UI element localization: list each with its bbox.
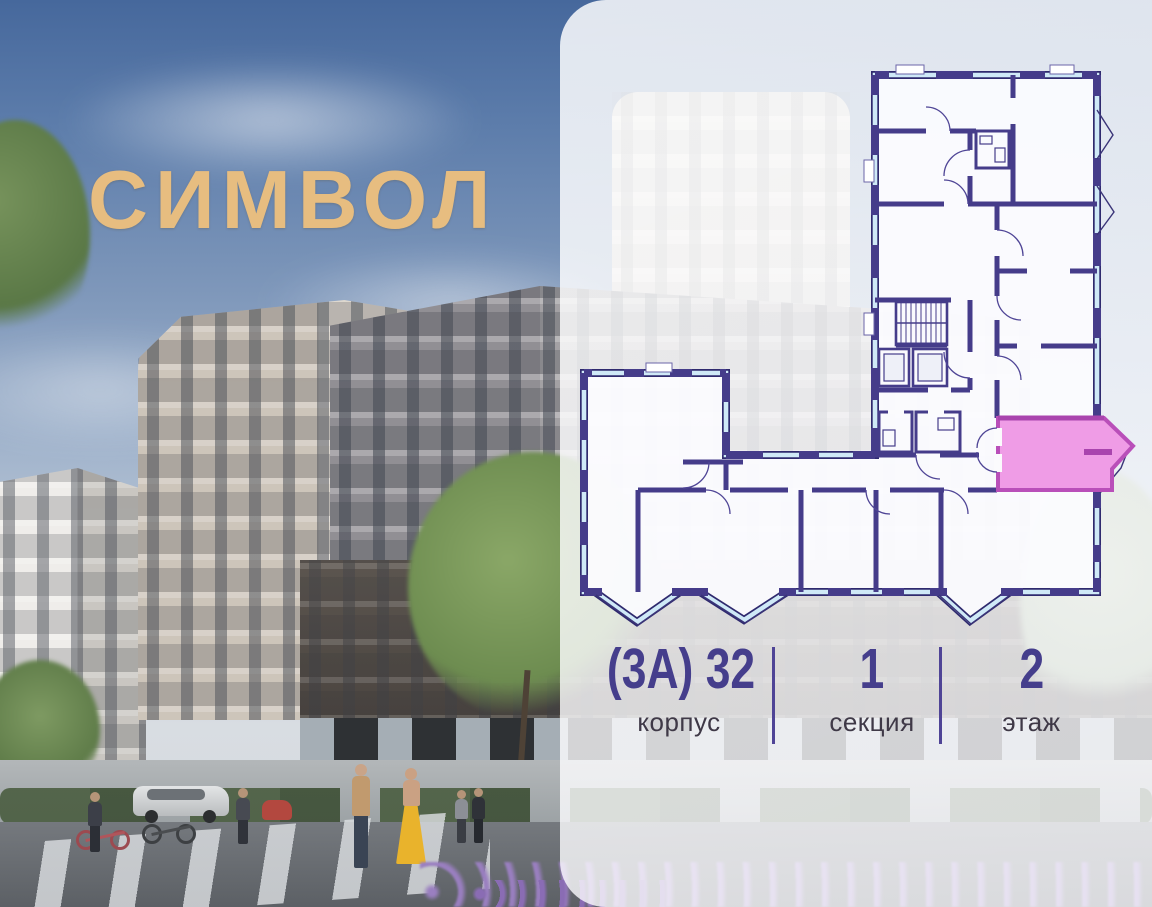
- door-opening: [994, 428, 1002, 446]
- person-head: [355, 764, 367, 776]
- car-window: [147, 789, 205, 800]
- bicycle: [142, 806, 202, 848]
- person-head: [238, 788, 248, 798]
- building-label: корпус: [586, 707, 772, 738]
- scooter: [262, 800, 292, 820]
- section-label: секция: [782, 707, 962, 738]
- floor-label: этаж: [949, 707, 1114, 738]
- floor-number: 2: [1019, 641, 1044, 698]
- building-info: (3А) 32 корпус: [586, 641, 772, 738]
- listing-page: СИМВОЛ: [0, 0, 1152, 907]
- pedestrian: [236, 788, 250, 844]
- person-head: [90, 792, 100, 802]
- section-info: 1 секция: [782, 641, 962, 738]
- person-head: [405, 768, 417, 780]
- door-opening: [994, 454, 1002, 472]
- divider: [772, 647, 775, 744]
- car-wheel: [203, 810, 216, 823]
- person-dress: [396, 806, 426, 864]
- person-body: [472, 797, 485, 819]
- brand-logo: СИМВОЛ: [88, 158, 508, 241]
- floor-info: 2 этаж: [949, 641, 1114, 738]
- section-number: 1: [860, 641, 885, 698]
- pedestrian-yellow-dress: [396, 768, 426, 864]
- person-body: [236, 798, 250, 820]
- divider: [939, 647, 942, 744]
- unit-info: (3А) 32 корпус 1 секция 2 этаж: [576, 641, 1152, 759]
- floor-plan: [576, 0, 1152, 907]
- selected-apartment-shape[interactable]: [998, 418, 1133, 490]
- plan-footprint: [584, 75, 1097, 622]
- bicycle: [76, 812, 136, 854]
- person-legs: [457, 819, 466, 843]
- person-legs: [354, 816, 368, 868]
- selected-apartment[interactable]: [977, 418, 1133, 490]
- person-body: [88, 802, 102, 826]
- person-legs: [90, 826, 100, 852]
- elevators: [879, 349, 947, 386]
- pedestrian-couple: [472, 788, 485, 843]
- pedestrian: [88, 792, 102, 852]
- person-head: [474, 788, 483, 797]
- person-legs: [474, 819, 483, 843]
- pedestrian-beige: [352, 764, 370, 868]
- person-body: [352, 776, 370, 816]
- person-body: [455, 799, 468, 819]
- person-head: [457, 790, 466, 799]
- person-legs: [238, 820, 248, 844]
- person-body: [403, 780, 420, 806]
- pedestrian-couple: [455, 790, 468, 843]
- building-number: (3А) 32: [607, 641, 755, 698]
